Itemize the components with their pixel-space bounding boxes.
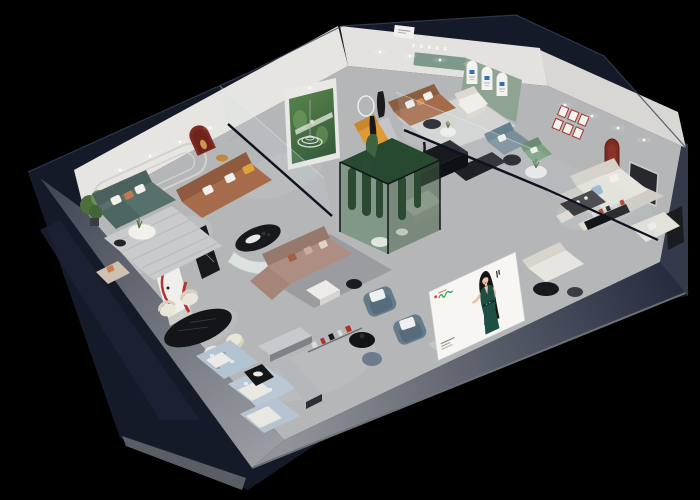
white-blossoms xyxy=(371,237,389,247)
shelf-decor xyxy=(167,287,170,290)
brass-decor xyxy=(216,155,228,162)
side-table-small xyxy=(114,240,126,247)
plant-pot xyxy=(90,218,99,226)
render-stage xyxy=(0,0,700,500)
vase xyxy=(360,334,365,339)
pouf-blue xyxy=(362,352,382,366)
top-plaque xyxy=(393,25,414,39)
showroom-render xyxy=(0,0,700,500)
side-table-black xyxy=(346,279,362,289)
mural-dot xyxy=(310,120,314,124)
pouf-dark xyxy=(567,287,583,297)
coffee-table-round xyxy=(128,224,156,240)
arch-poster-3 xyxy=(497,73,508,97)
statue-figure xyxy=(377,91,385,118)
arch-poster-2 xyxy=(482,67,493,91)
coffee-table-black-oval xyxy=(533,282,559,296)
white-blossoms xyxy=(396,229,408,236)
tray xyxy=(253,372,263,377)
